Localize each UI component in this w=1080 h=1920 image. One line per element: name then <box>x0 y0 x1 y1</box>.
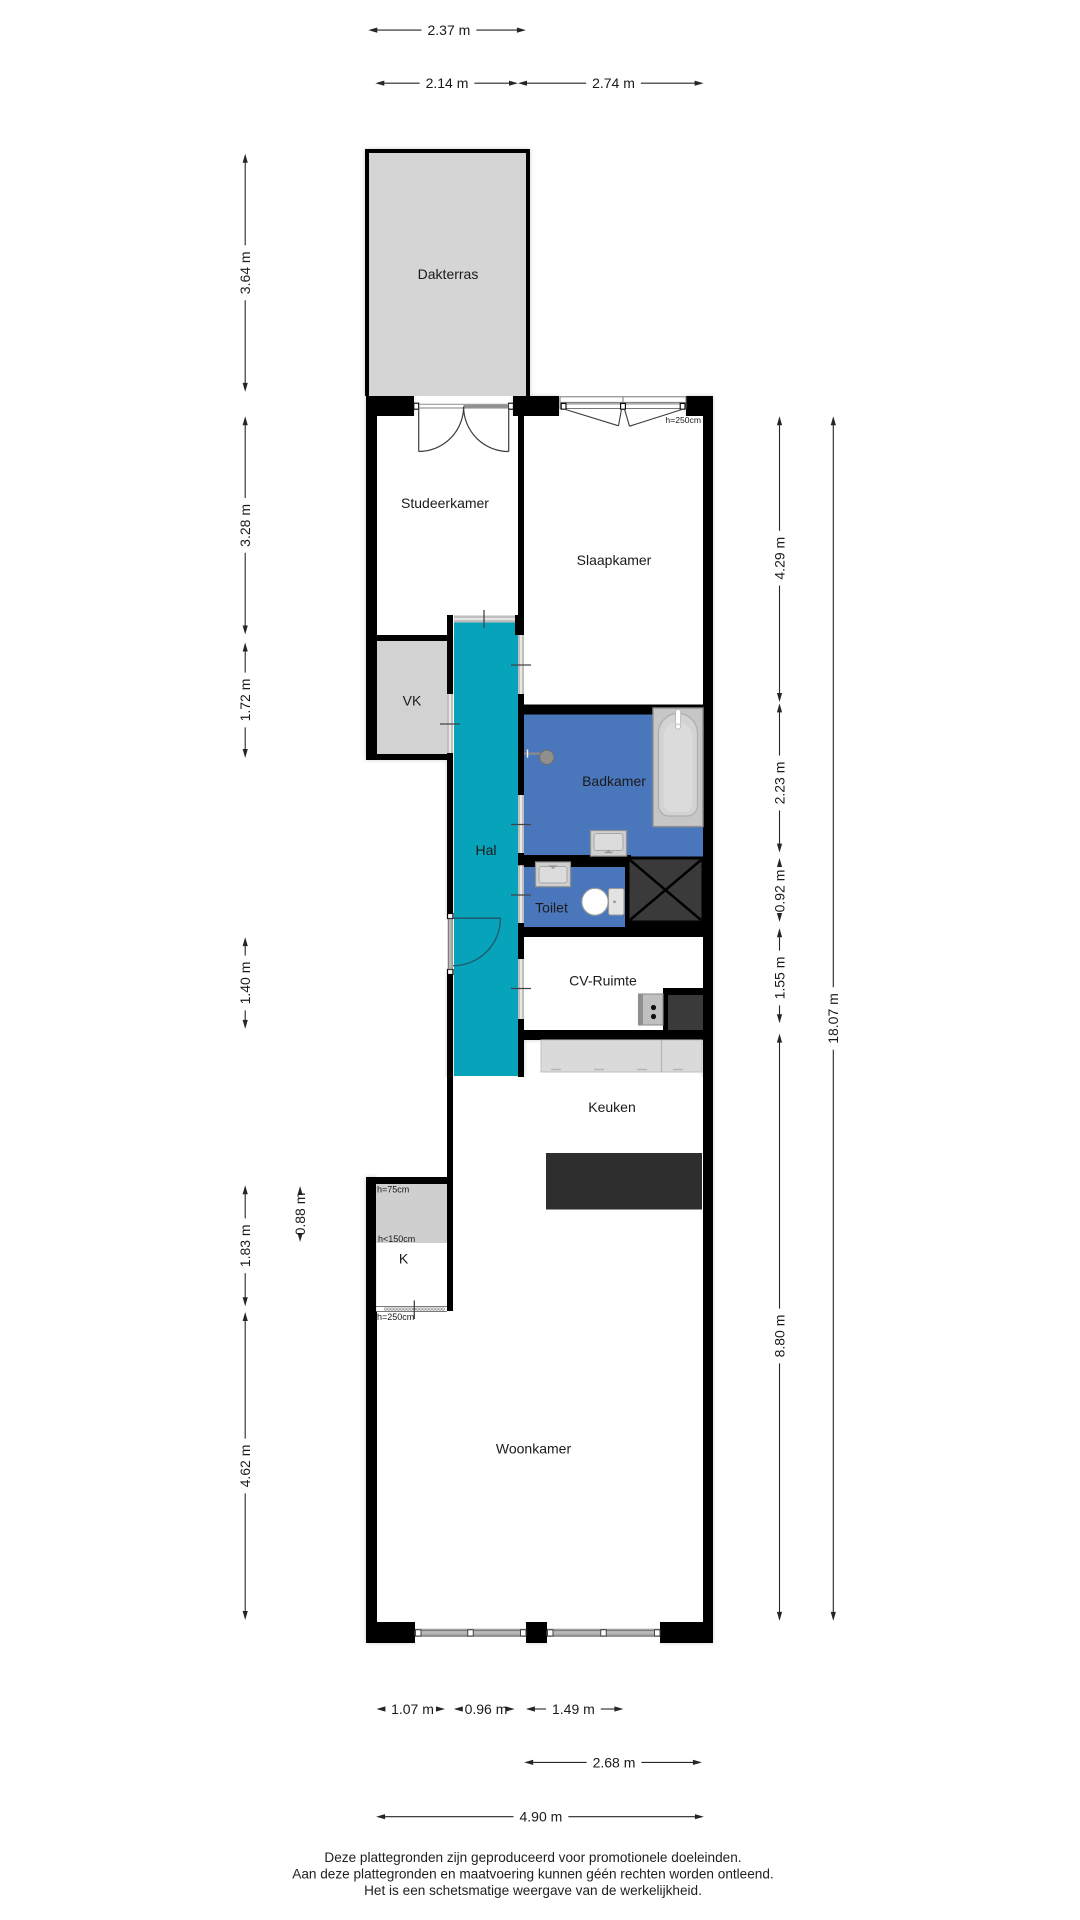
svg-text:1.72 m: 1.72 m <box>237 679 253 722</box>
svg-text:0.96 m: 0.96 m <box>465 1701 508 1717</box>
svg-text:0.92 m: 0.92 m <box>771 870 787 913</box>
svg-text:VK: VK <box>403 693 422 709</box>
svg-text:2.23 m: 2.23 m <box>771 762 787 805</box>
svg-text:0.88 m: 0.88 m <box>292 1193 308 1236</box>
svg-text:h=250cm: h=250cm <box>377 1312 414 1322</box>
svg-text:3.28 m: 3.28 m <box>237 504 253 547</box>
svg-text:2.14 m: 2.14 m <box>426 75 469 91</box>
svg-text:1.55 m: 1.55 m <box>771 957 787 1000</box>
svg-text:Badkamer: Badkamer <box>582 773 646 789</box>
svg-text:4.90 m: 4.90 m <box>519 1809 562 1825</box>
svg-text:Toilet: Toilet <box>535 900 568 916</box>
svg-text:CV-Ruimte: CV-Ruimte <box>569 973 637 989</box>
svg-text:4.29 m: 4.29 m <box>771 537 787 580</box>
svg-text:3.64 m: 3.64 m <box>237 251 253 294</box>
svg-text:2.37 m: 2.37 m <box>427 22 470 38</box>
svg-text:1.07 m: 1.07 m <box>391 1701 434 1717</box>
svg-text:18.07 m: 18.07 m <box>825 993 841 1044</box>
svg-text:2.74 m: 2.74 m <box>592 75 635 91</box>
svg-text:Hal: Hal <box>475 842 496 858</box>
svg-text:K: K <box>399 1251 409 1267</box>
svg-text:1.83 m: 1.83 m <box>237 1224 253 1267</box>
svg-text:1.40 m: 1.40 m <box>237 962 253 1005</box>
svg-text:h=75cm: h=75cm <box>377 1185 409 1195</box>
svg-text:1.49 m: 1.49 m <box>552 1701 595 1717</box>
svg-text:2.68 m: 2.68 m <box>593 1754 636 1770</box>
svg-text:Keuken: Keuken <box>588 1099 635 1115</box>
svg-text:4.62 m: 4.62 m <box>237 1445 253 1488</box>
svg-text:Het is een schetsmatige weerga: Het is een schetsmatige weergave van de … <box>364 1883 702 1898</box>
svg-text:Woonkamer: Woonkamer <box>496 1441 572 1457</box>
svg-text:h=250cm: h=250cm <box>665 415 701 425</box>
svg-text:h<150cm: h<150cm <box>378 1234 415 1244</box>
svg-text:Slaapkamer: Slaapkamer <box>577 552 652 568</box>
svg-text:Deze plattegronden zijn geprod: Deze plattegronden zijn geproduceerd voo… <box>324 1850 741 1865</box>
svg-text:Aan deze plattegronden en maat: Aan deze plattegronden en maatvoering ku… <box>292 1867 773 1882</box>
svg-text:8.80 m: 8.80 m <box>771 1315 787 1358</box>
svg-text:Dakterras: Dakterras <box>418 266 479 282</box>
svg-text:Studeerkamer: Studeerkamer <box>401 495 489 511</box>
